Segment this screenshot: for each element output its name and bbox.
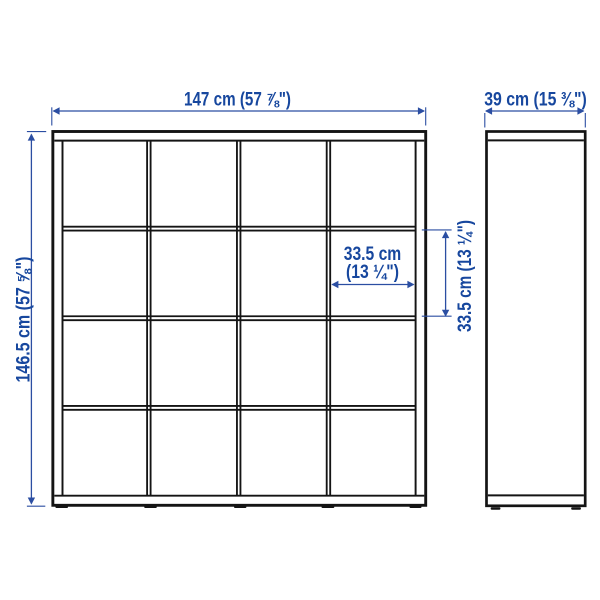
svg-text:39 cm (15 ⅜"): 39 cm (15 ⅜") (484, 88, 587, 110)
svg-text:33.5 cm (13 ¼"): 33.5 cm (13 ¼") (454, 220, 476, 332)
svg-text:146.5 cm (57 ⅝"): 146.5 cm (57 ⅝") (12, 257, 34, 383)
svg-text:147 cm (57 ⅞"): 147 cm (57 ⅞") (184, 88, 291, 110)
svg-text:(13 ¼"): (13 ¼") (346, 261, 399, 283)
